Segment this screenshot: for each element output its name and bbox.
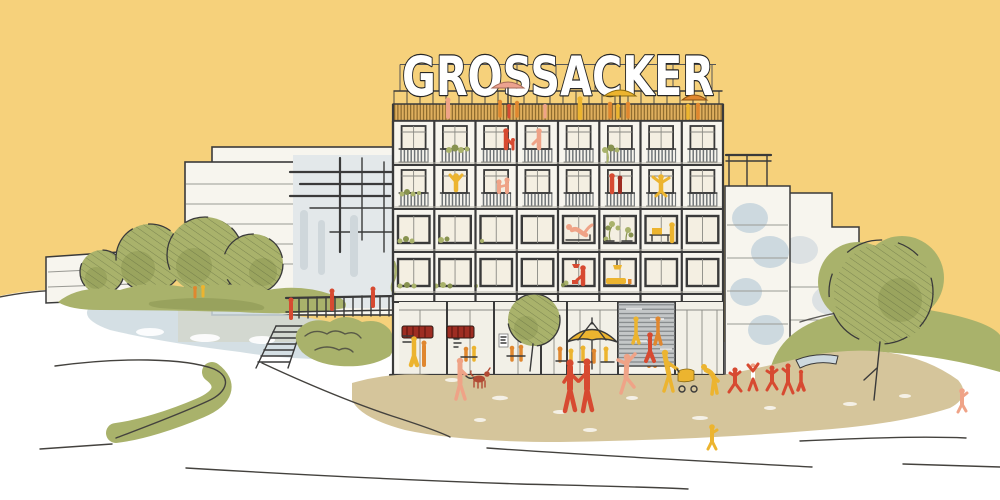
right-glazing (675, 302, 723, 375)
illustration-canvas: GROSSACKER (0, 0, 1000, 500)
grossacker-illustration: GROSSACKER (0, 0, 1000, 500)
roof-fascia (393, 104, 723, 121)
